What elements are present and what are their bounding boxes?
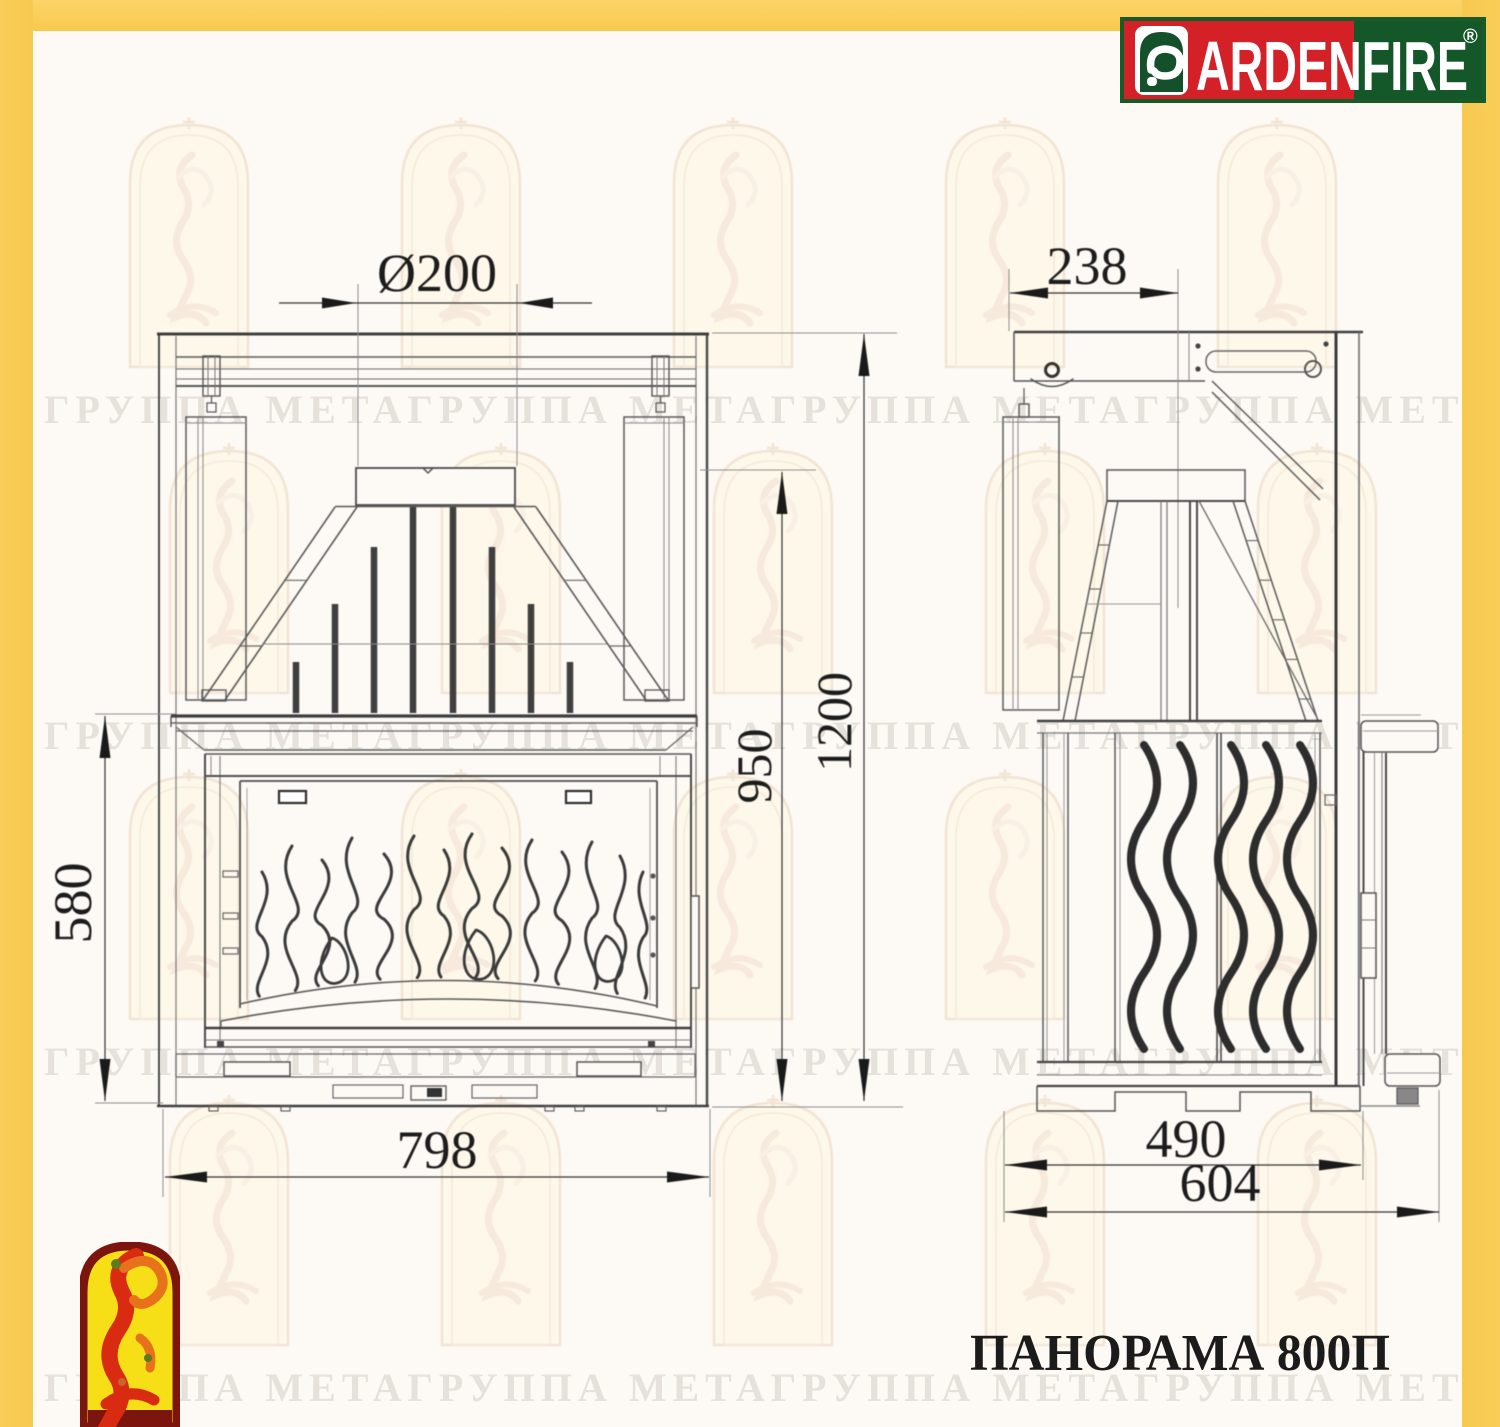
svg-text:950: 950 (726, 729, 782, 804)
svg-text:798: 798 (397, 1120, 478, 1180)
svg-text:238: 238 (1047, 236, 1128, 296)
svg-text:Ø200: Ø200 (377, 243, 497, 303)
svg-text:580: 580 (43, 863, 103, 944)
svg-text:®: ® (1463, 26, 1478, 48)
svg-text:ПАНОРАМА 800П: ПАНОРАМА 800П (970, 1325, 1390, 1382)
svg-text:604: 604 (1180, 1153, 1261, 1213)
svg-text:ARDENFIRE: ARDENFIRE (1196, 27, 1468, 103)
svg-text:1200: 1200 (806, 672, 862, 772)
